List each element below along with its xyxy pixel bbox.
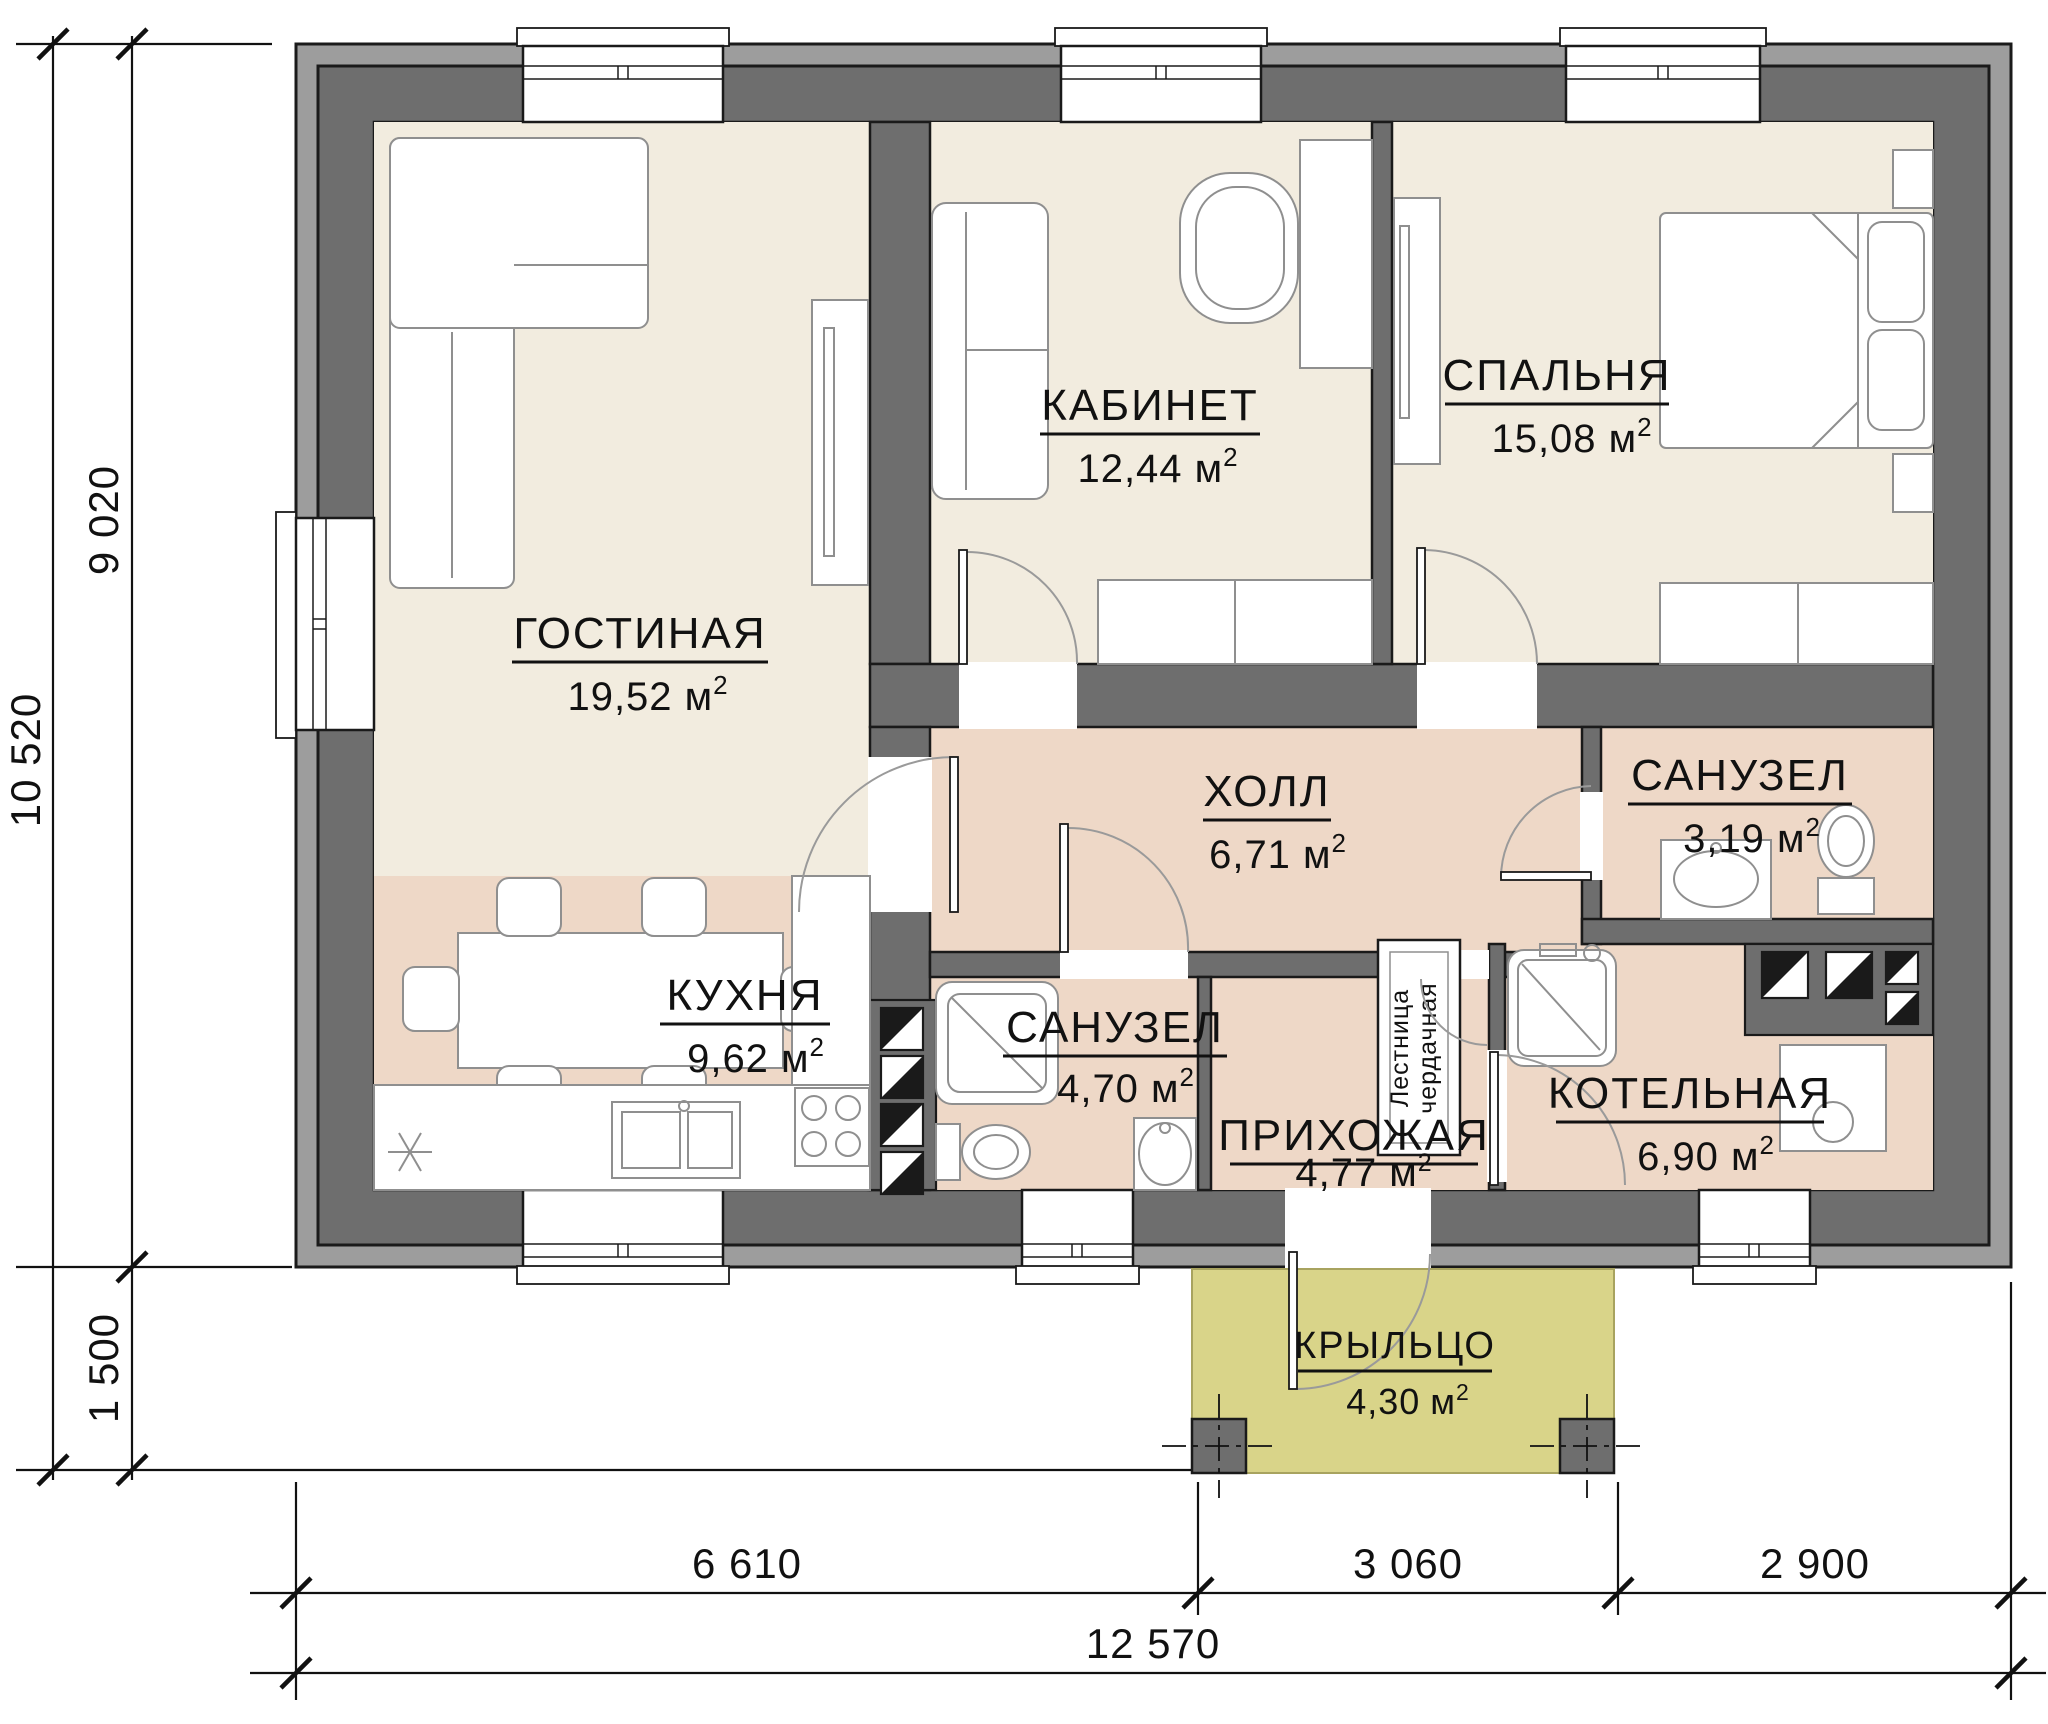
attic-ladder-label-2: чердачная — [1414, 982, 1442, 1113]
tv-cabinet — [812, 300, 868, 585]
nightstand — [1893, 454, 1933, 512]
room-label-porch: КРЫЛЬЦО — [1294, 1325, 1496, 1367]
room-label-boiler: КОТЕЛЬНАЯ — [1548, 1069, 1832, 1118]
pillow — [1868, 222, 1924, 322]
wc-top-door-leaf — [1501, 872, 1591, 880]
window-boiler — [1693, 1190, 1816, 1284]
attic-ladder-label-1: Лестница — [1386, 989, 1414, 1107]
tv-screen — [824, 328, 834, 556]
svg-text:4,30м2: 4,30м2 — [1346, 1379, 1470, 1422]
svg-text:6,90м2: 6,90м2 — [1637, 1130, 1775, 1179]
window-bedroom — [1560, 28, 1766, 122]
svg-text:19,52м2: 19,52м2 — [567, 670, 728, 719]
room-label-living: ГОСТИНАЯ — [513, 609, 766, 658]
room-label-kitchen: КУХНЯ — [667, 971, 824, 1020]
room-label-hall: ХОЛЛ — [1203, 767, 1330, 816]
floor-plan-canvas: 10 520 9 020 1 500 6 610 3 060 2 900 12 … — [0, 0, 2048, 1724]
bedroom-cabinet — [1660, 583, 1933, 664]
dim-bottom-mid: 3 060 — [1353, 1540, 1463, 1587]
wall-living-office — [870, 122, 930, 664]
toilet-bowl — [962, 1125, 1030, 1179]
dim-bottom-total: 12 570 — [1086, 1620, 1220, 1667]
washbasin — [1134, 1118, 1196, 1190]
wc-low-door-leaf — [1060, 824, 1068, 952]
nightstand — [1893, 150, 1933, 208]
wall-wc-top-bottom — [1582, 919, 1933, 944]
pillow — [1868, 330, 1924, 430]
chair — [642, 878, 706, 936]
svg-text:12,44м2: 12,44м2 — [1077, 442, 1238, 491]
room-label-wc-top: САНУЗЕЛ — [1631, 751, 1849, 800]
room-label-bedroom: СПАЛЬНЯ — [1442, 351, 1671, 400]
kitchen-sink — [612, 1102, 740, 1178]
wall-office-bedroom — [1372, 122, 1392, 664]
window-living-left — [276, 512, 374, 738]
boiler-door-leaf — [1490, 1052, 1498, 1185]
svg-text:9,62м2: 9,62м2 — [687, 1032, 825, 1081]
office-desk — [1300, 140, 1372, 368]
dim-left-total: 10 520 — [2, 693, 49, 827]
svg-text:4,77м2: 4,77м2 — [1295, 1149, 1432, 1195]
window-wc-low — [1016, 1190, 1139, 1284]
dim-bottom-left: 6 610 — [692, 1540, 802, 1587]
entry-door-leaf — [1289, 1252, 1297, 1389]
window-kitchen — [517, 1190, 729, 1284]
chair — [403, 967, 459, 1031]
hall-door-leaf — [950, 757, 958, 912]
svg-text:6,71м2: 6,71м2 — [1209, 828, 1347, 877]
svg-text:15,08м2: 15,08м2 — [1491, 412, 1652, 461]
floor-plan-drawing: 10 520 9 020 1 500 6 610 3 060 2 900 12 … — [0, 0, 2048, 1724]
room-label-wc-low: САНУЗЕЛ — [1006, 1003, 1224, 1052]
office-door-leaf — [959, 550, 967, 664]
bedroom-door-leaf — [1417, 548, 1425, 664]
window-office — [1055, 28, 1267, 122]
room-label-office: КАБИНЕТ — [1041, 381, 1258, 430]
svg-text:3,19м2: 3,19м2 — [1683, 812, 1821, 861]
toilet-tank — [936, 1124, 960, 1180]
dim-left-porch: 1 500 — [80, 1313, 127, 1423]
chair — [497, 878, 561, 936]
window-living-top — [517, 28, 729, 122]
toilet-tank — [1818, 878, 1874, 914]
office-chair — [1180, 173, 1298, 323]
bedroom-tv — [1400, 226, 1409, 418]
dim-left-main: 9 020 — [80, 465, 127, 575]
dim-bottom-right: 2 900 — [1760, 1540, 1870, 1587]
svg-text:4,70м2: 4,70м2 — [1057, 1062, 1195, 1111]
